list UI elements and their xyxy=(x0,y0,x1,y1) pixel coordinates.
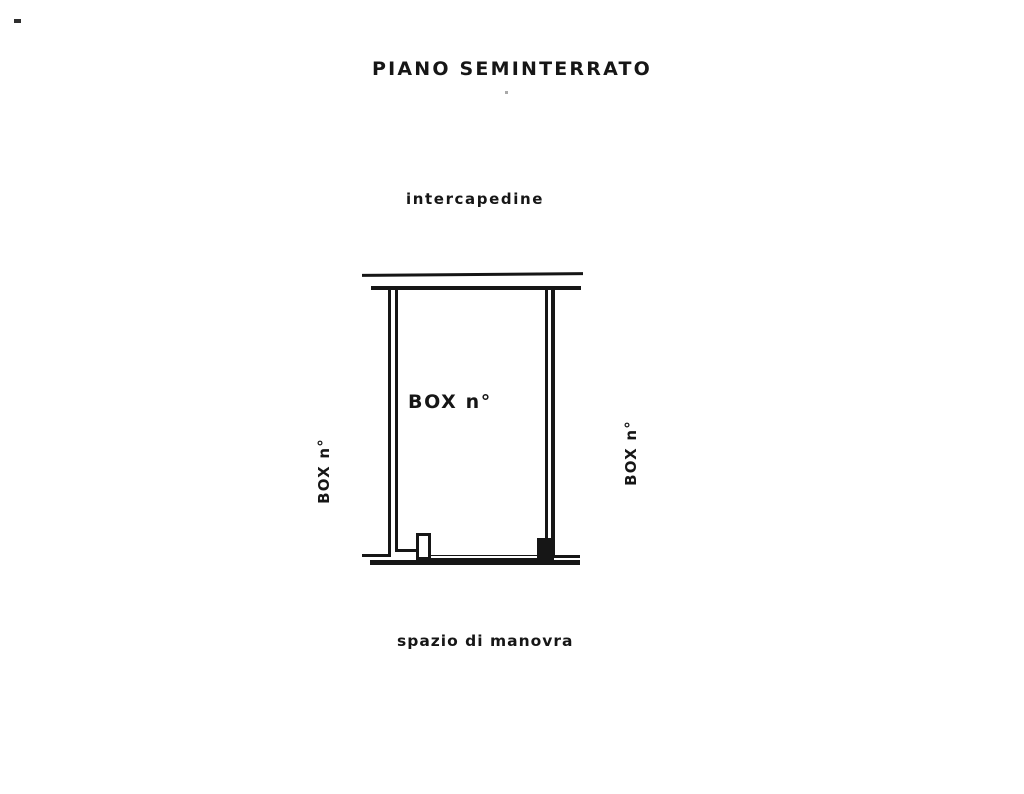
label-intercapedine: intercapedine xyxy=(406,190,544,208)
label-box-number-center: BOX n° xyxy=(408,391,492,413)
garage-door-right-jamb xyxy=(537,538,554,562)
label-spazio-di-manovra: spazio di manovra xyxy=(397,632,573,650)
box-left-wall-inner-line xyxy=(395,288,398,551)
garage-door-left-jamb xyxy=(416,533,431,560)
floorplan-page: PIANO SEMINTERRATO intercapedine BOX n° … xyxy=(0,0,1024,794)
maneuver-space-boundary-line xyxy=(370,560,580,565)
scan-dot xyxy=(505,91,508,94)
box-right-wall-outer-line xyxy=(551,288,555,558)
label-box-number-right: BOX n° xyxy=(622,403,642,503)
bottom-wall-right-segment xyxy=(553,555,580,558)
box-right-wall-inner-line xyxy=(545,288,548,539)
garage-door-threshold-line-upper xyxy=(431,555,537,556)
intercapedine-outer-wall-line xyxy=(362,272,583,277)
box-left-wall-outer-line xyxy=(388,288,391,557)
label-box-number-left: BOX n° xyxy=(315,421,335,521)
bottom-wall-left-inner-segment xyxy=(395,549,419,552)
scan-speck xyxy=(14,19,21,23)
intercapedine-inner-wall-line xyxy=(371,286,581,290)
plan-title: PIANO SEMINTERRATO xyxy=(0,58,1024,80)
bottom-wall-left-outer-segment xyxy=(362,554,391,557)
